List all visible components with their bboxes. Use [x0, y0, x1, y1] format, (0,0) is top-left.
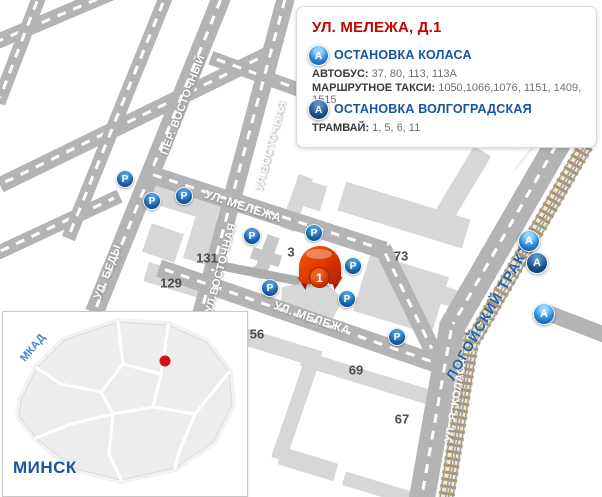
destination-marker[interactable]: 1 [299, 246, 341, 290]
bus-stop-icon-kolasa[interactable]: А [518, 230, 540, 252]
street-grid [0, 0, 46, 106]
transit-line-label: АВТОБУС: [312, 68, 369, 80]
building-number-131: 131 [196, 251, 218, 266]
tram-stop-icon: А [308, 99, 329, 120]
building-69-wing [278, 447, 339, 481]
building-number-3: 3 [287, 245, 294, 260]
marker-number-badge: 1 [309, 267, 330, 288]
parking-icon[interactable]: Р [143, 192, 161, 210]
parking-icon[interactable]: Р [344, 257, 362, 275]
parking-icon[interactable]: Р [243, 227, 261, 245]
map-widget: ПЕР. ВОСТОЧНЫЙ УЛ. БЕДЫ УЛ.ВОСТОЧНАЯ УЛ.… [0, 0, 602, 497]
transit-line-values: 1, 5, 6, 11 [372, 122, 420, 134]
building-number-56: 56 [250, 327, 264, 342]
street-grid [0, 190, 123, 261]
building-block [142, 223, 184, 262]
infobox: УЛ. МЕЛЕЖА, Д.1 А ОСТАНОВКА КОЛАСА АВТОБ… [296, 6, 597, 148]
transit-line-values: 37, 80, 113, 113А [372, 68, 457, 80]
bus-stop-icon: А [308, 45, 329, 66]
city-name-label: МИНСК [13, 458, 77, 478]
building-number-69: 69 [349, 363, 363, 378]
parking-icon[interactable]: Р [175, 187, 193, 205]
transit-line-tram: ТРАМВАЙ:1, 5, 6, 11 [312, 122, 420, 134]
parking-icon[interactable]: Р [338, 290, 356, 308]
stop-name-volgogradskaya: ОСТАНОВКА ВОЛГОГРАДСКАЯ [334, 102, 532, 116]
transit-line-bus: АВТОБУС:37, 80, 113, 113А [312, 68, 457, 80]
building-number-67: 67 [395, 412, 409, 427]
parking-icon[interactable]: Р [388, 328, 406, 346]
inset-location-dot [160, 356, 171, 367]
transit-line-label: МАРШРУТНОЕ ТАКСИ: [312, 82, 435, 94]
address-title: УЛ. МЕЛЕЖА, Д.1 [312, 19, 442, 36]
building-number-129: 129 [160, 276, 182, 291]
parking-icon[interactable]: Р [116, 170, 134, 188]
tram-stop-icon-volgogradskaya[interactable]: А [526, 252, 548, 274]
building-number-73: 73 [394, 249, 408, 264]
parking-icon[interactable]: Р [261, 279, 279, 297]
city-overview-inset[interactable]: МКАД МИНСК [2, 311, 248, 497]
parking-icon[interactable]: Р [305, 224, 323, 242]
building-69-wing [271, 362, 318, 461]
transit-line-label: ТРАМВАЙ: [312, 122, 369, 134]
stop-name-kolasa: ОСТАНОВКА КОЛАСА [334, 48, 472, 62]
bus-stop-icon-kolasa[interactable]: А [533, 303, 555, 325]
